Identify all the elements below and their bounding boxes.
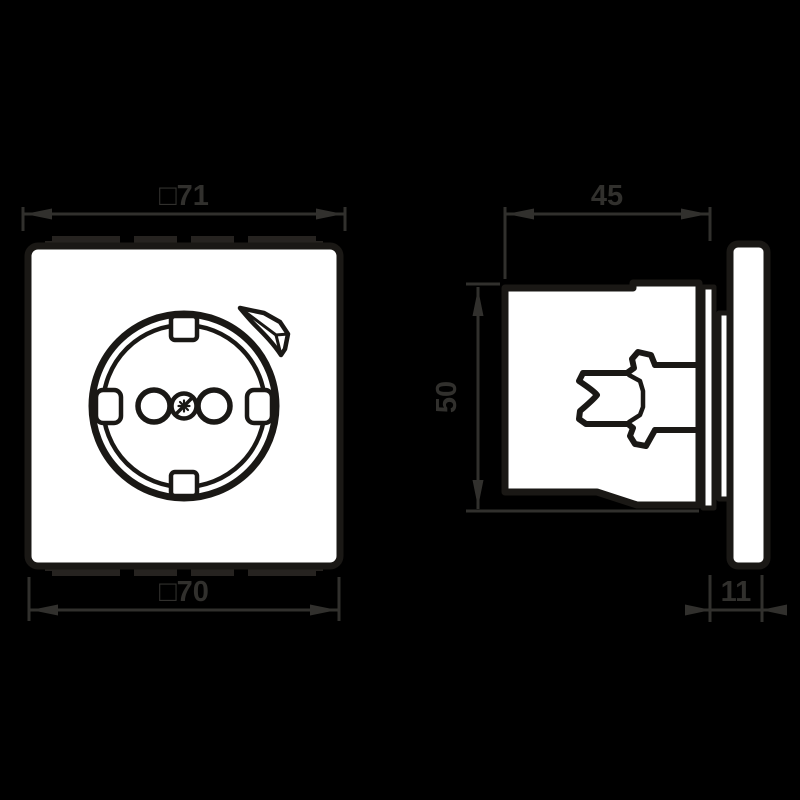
- dimension-plate-thickness: 11: [685, 575, 787, 622]
- dim-label-side-depth: 45: [591, 180, 623, 212]
- side-recess-right: [247, 390, 272, 423]
- side-view: 45 50 11: [431, 180, 787, 622]
- earth-slot-top: [171, 316, 197, 340]
- technical-drawing-canvas: □71 □70: [0, 0, 800, 800]
- dim-label-plate-thickness: 11: [721, 576, 752, 608]
- dimension-front-top: □71: [23, 180, 345, 231]
- side-recess-left: [96, 390, 121, 423]
- support-flange-strip: [703, 287, 714, 508]
- dim-label-front-top: □71: [159, 180, 209, 212]
- socket-technical-drawing: □71 □70: [0, 0, 800, 800]
- front-view: □71 □70: [23, 180, 345, 621]
- dimension-front-bottom: □70: [29, 576, 339, 621]
- dimension-side-depth: 45: [505, 180, 710, 279]
- dim-label-side-height: 50: [431, 381, 463, 413]
- socket-body-profile: [505, 283, 699, 505]
- earth-slot-bottom: [171, 472, 197, 496]
- cover-plate-side: [730, 244, 767, 566]
- dim-label-front-bottom: □70: [159, 576, 209, 608]
